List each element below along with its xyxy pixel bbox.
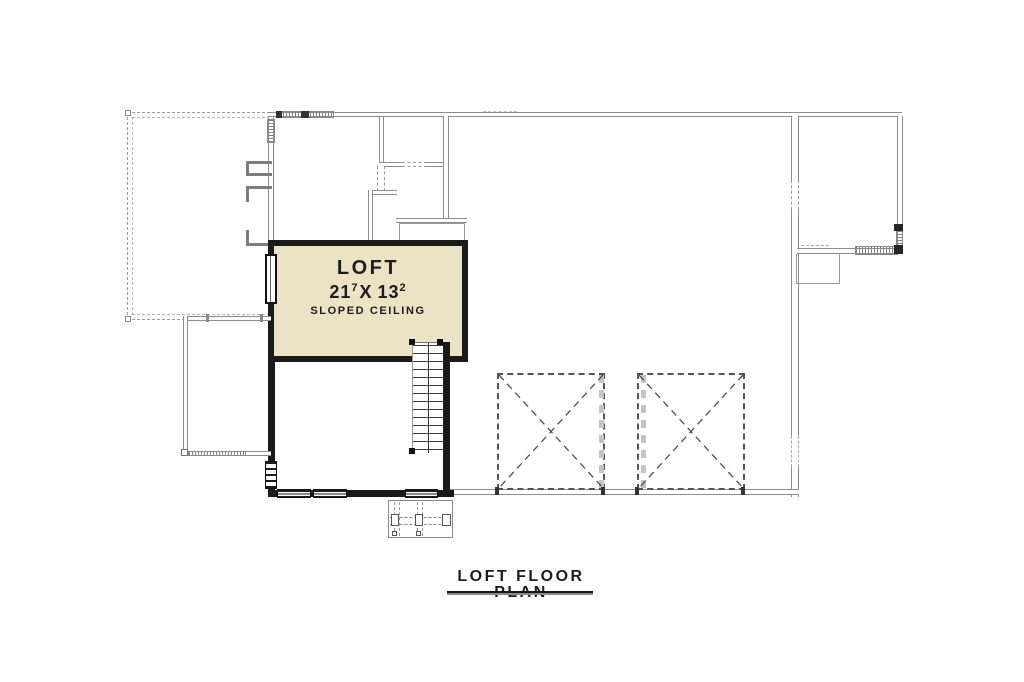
stair-stringer bbox=[428, 343, 429, 453]
porch-wall-left bbox=[183, 316, 188, 456]
stair-newel-post bbox=[437, 339, 443, 345]
loft-ceiling-note: SLOPED CEILING bbox=[283, 306, 453, 319]
porch-tick bbox=[260, 314, 263, 322]
stair-newel-post bbox=[409, 448, 415, 454]
deck-post bbox=[416, 531, 421, 536]
plan-caption: LOFT FLOOR PLAN bbox=[430, 569, 612, 589]
porch-wall-top bbox=[183, 316, 271, 321]
window-bottom bbox=[277, 489, 311, 498]
porch-tick bbox=[206, 314, 209, 322]
window-bottom bbox=[405, 489, 438, 498]
window-room-left bbox=[265, 461, 277, 489]
porch-wall-hatch bbox=[188, 451, 246, 456]
loft-room-dimensions: 217X132 bbox=[283, 283, 453, 303]
deck-post bbox=[415, 514, 423, 526]
dim-feet-2: 13 bbox=[378, 282, 400, 302]
window-bottom bbox=[313, 489, 347, 498]
stair-wall bbox=[443, 342, 450, 497]
floor-plan: LOFT 217X132 SLOPED CEILING LOFT FLOOR P… bbox=[0, 0, 1024, 682]
deck-post bbox=[392, 531, 397, 536]
deck-post bbox=[391, 514, 399, 526]
loft-room-label: LOFT bbox=[283, 258, 453, 280]
window-loft-left bbox=[265, 254, 277, 304]
caption-underline bbox=[447, 591, 593, 595]
dim-inches-2: 2 bbox=[400, 282, 407, 294]
dim-inches-1: 7 bbox=[351, 282, 358, 294]
dim-feet-1: 21 bbox=[329, 282, 351, 302]
deck-dashed-line bbox=[399, 502, 400, 536]
deck-post bbox=[442, 514, 451, 526]
stair-newel-post bbox=[409, 339, 415, 345]
dim-separator: X bbox=[359, 282, 372, 302]
porch-corner-post bbox=[181, 449, 188, 456]
